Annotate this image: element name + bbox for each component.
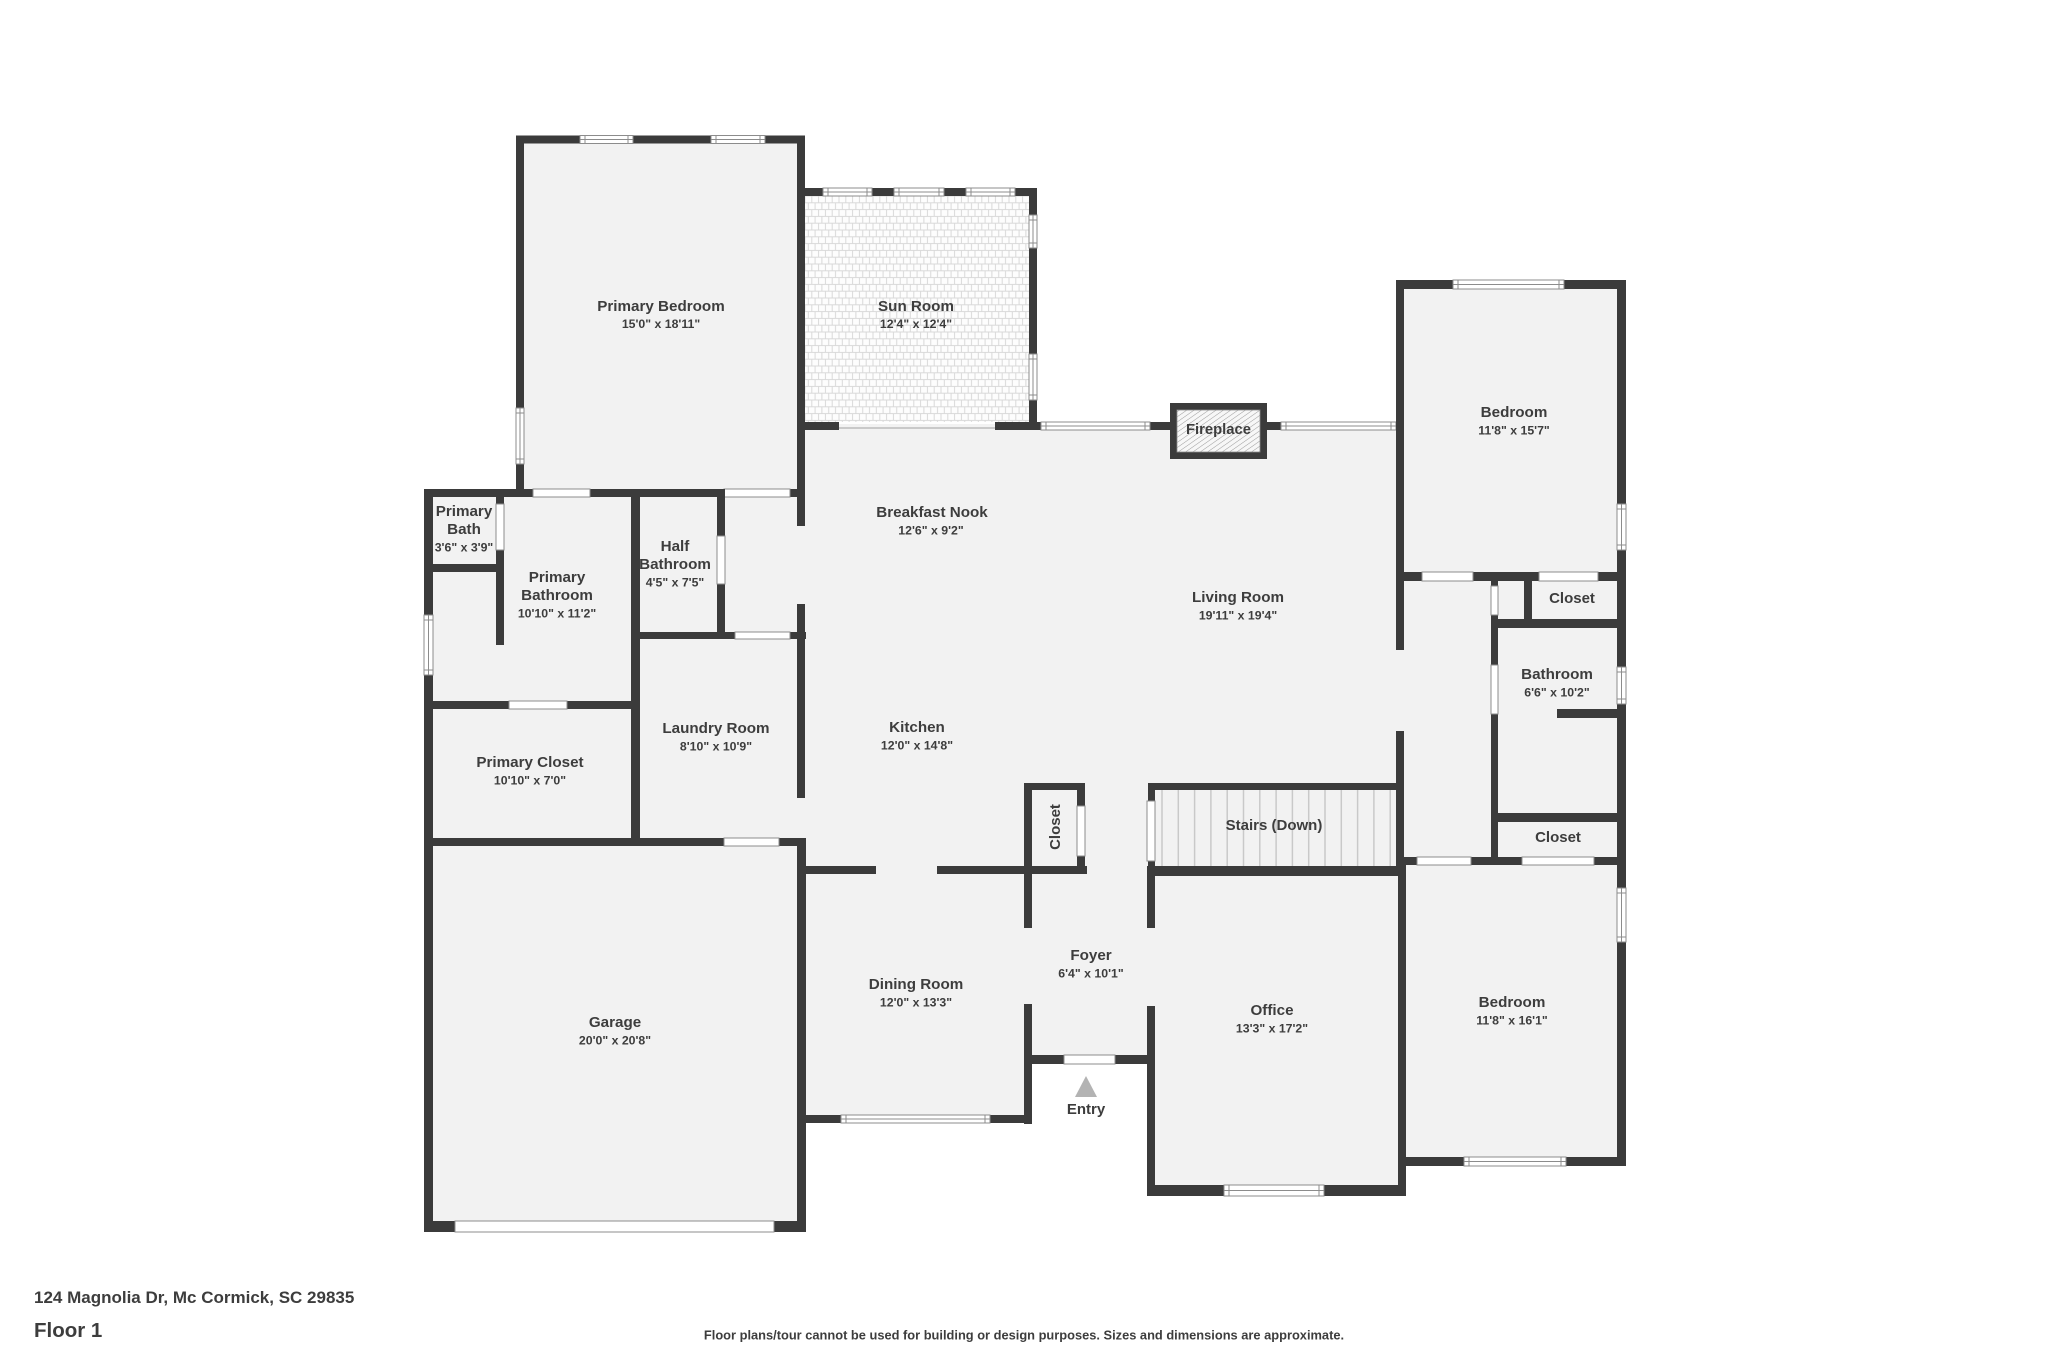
svg-text:Entry: Entry xyxy=(1067,1101,1106,1118)
svg-text:Half: Half xyxy=(661,538,691,555)
svg-text:Fireplace: Fireplace xyxy=(1186,422,1251,438)
svg-text:Primary Bedroom: Primary Bedroom xyxy=(597,298,724,315)
svg-text:Foyer: Foyer xyxy=(1070,947,1111,964)
svg-text:10'10" x 11'2": 10'10" x 11'2" xyxy=(518,606,597,620)
svg-text:12'4" x 12'4": 12'4" x 12'4" xyxy=(880,317,952,331)
svg-text:Bedroom: Bedroom xyxy=(1481,404,1548,421)
svg-text:12'0" x 13'3": 12'0" x 13'3" xyxy=(880,995,952,1009)
svg-text:Laundry Room: Laundry Room xyxy=(662,720,769,737)
svg-text:Breakfast Nook: Breakfast Nook xyxy=(876,504,988,521)
svg-text:Bathroom: Bathroom xyxy=(1521,666,1593,683)
svg-text:Bedroom: Bedroom xyxy=(1479,994,1546,1011)
svg-text:Stairs (Down): Stairs (Down) xyxy=(1226,817,1323,834)
svg-text:13'3" x 17'2": 13'3" x 17'2" xyxy=(1236,1021,1308,1035)
svg-text:Sun Room: Sun Room xyxy=(878,298,954,315)
svg-text:Closet: Closet xyxy=(1047,804,1064,850)
svg-text:15'0" x 18'11": 15'0" x 18'11" xyxy=(622,317,701,331)
svg-text:124 Magnolia Dr, Mc Cormick, S: 124 Magnolia Dr, Mc Cormick, SC 29835 xyxy=(34,1288,354,1307)
svg-text:19'11" x 19'4": 19'11" x 19'4" xyxy=(1199,608,1278,622)
svg-text:Living Room: Living Room xyxy=(1192,589,1284,606)
svg-text:Dining Room: Dining Room xyxy=(869,976,963,993)
svg-text:20'0" x 20'8": 20'0" x 20'8" xyxy=(579,1033,651,1047)
svg-text:6'6" x 10'2": 6'6" x 10'2" xyxy=(1524,685,1590,699)
svg-text:Bathroom: Bathroom xyxy=(639,556,711,573)
svg-text:Primary: Primary xyxy=(529,569,586,586)
svg-text:3'6" x 3'9": 3'6" x 3'9" xyxy=(435,540,494,554)
svg-text:Office: Office xyxy=(1250,1002,1293,1019)
svg-text:Primary Closet: Primary Closet xyxy=(476,754,583,771)
svg-text:10'10" x 7'0": 10'10" x 7'0" xyxy=(494,773,566,787)
svg-text:4'5" x 7'5": 4'5" x 7'5" xyxy=(646,575,705,589)
svg-text:8'10" x 10'9": 8'10" x 10'9" xyxy=(680,739,752,753)
svg-text:Kitchen: Kitchen xyxy=(889,719,945,736)
svg-text:Bathroom: Bathroom xyxy=(521,587,593,604)
svg-text:Primary: Primary xyxy=(436,503,493,520)
svg-text:11'8" x 16'1": 11'8" x 16'1" xyxy=(1476,1013,1548,1027)
svg-text:Floor plans/tour cannot be use: Floor plans/tour cannot be used for buil… xyxy=(704,1328,1344,1343)
svg-text:6'4" x 10'1": 6'4" x 10'1" xyxy=(1058,966,1124,980)
svg-text:Garage: Garage xyxy=(589,1014,641,1031)
svg-text:11'8" x 15'7": 11'8" x 15'7" xyxy=(1478,423,1550,437)
svg-text:Bath: Bath xyxy=(447,521,481,538)
svg-text:Closet: Closet xyxy=(1535,829,1581,846)
svg-text:Floor 1: Floor 1 xyxy=(34,1319,102,1342)
svg-text:12'6" x 9'2": 12'6" x 9'2" xyxy=(898,523,964,537)
svg-text:12'0" x 14'8": 12'0" x 14'8" xyxy=(881,738,953,752)
svg-text:Closet: Closet xyxy=(1549,590,1595,607)
